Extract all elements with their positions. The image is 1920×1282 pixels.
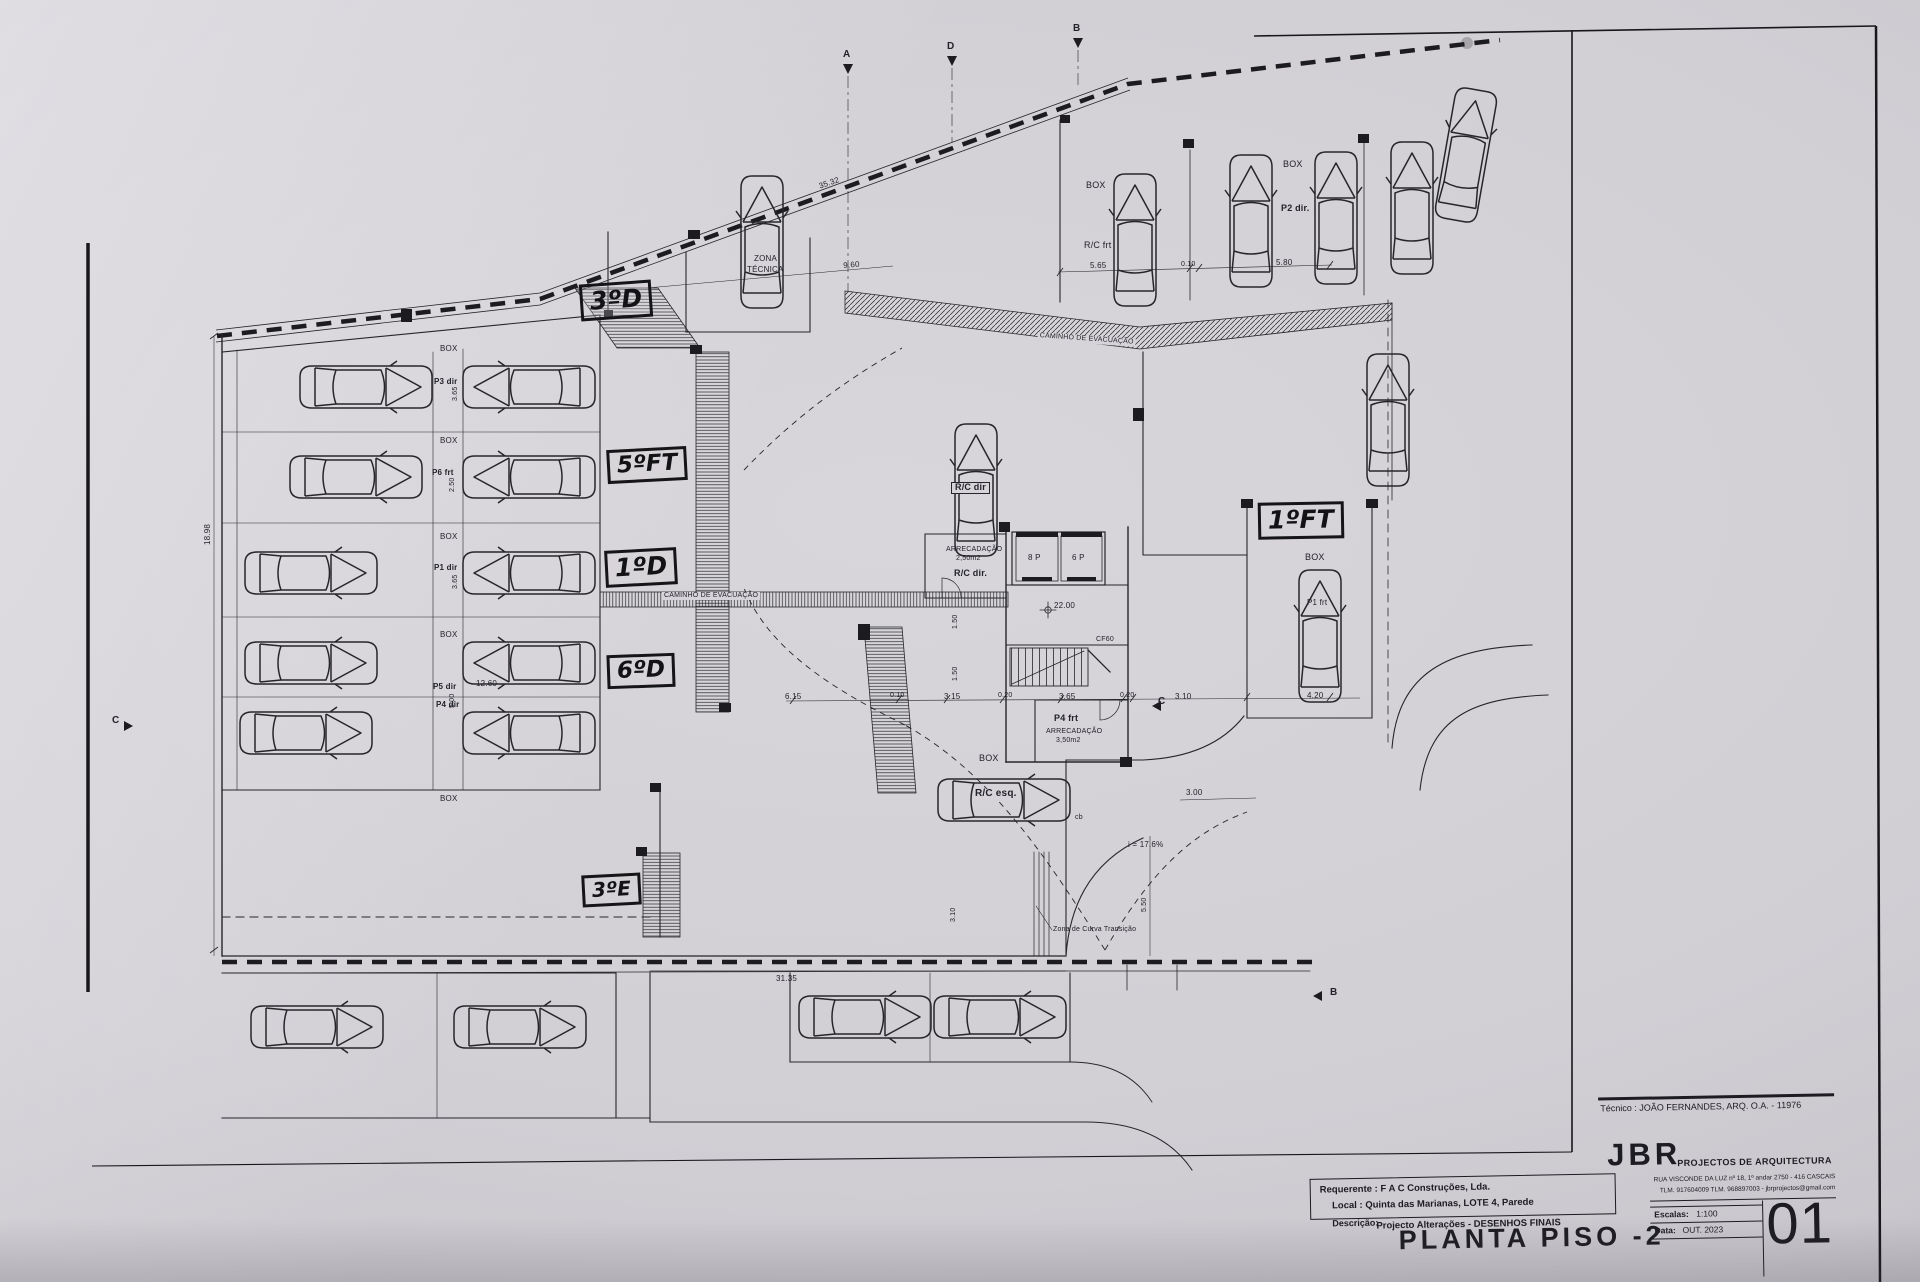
- dim-0-20: 0.20: [1120, 692, 1134, 700]
- stall-code-p4-frt: P4 frt: [1054, 714, 1078, 724]
- car-icon: [245, 547, 377, 599]
- elevator-8p-label: 8 P: [1028, 554, 1041, 563]
- stall-code-p1-frt: P1 frt: [1307, 599, 1327, 608]
- handwritten-unit-6d: 6ºD: [606, 653, 675, 689]
- handwritten-unit-5ft: 5ºFT: [606, 446, 688, 484]
- rc-dir-room-label: R/C dir.: [954, 569, 987, 579]
- dim-6-15: 6.15: [785, 693, 801, 702]
- dim-9-60: 9.60: [843, 261, 860, 271]
- rc-frt-label: R/C frt: [1084, 241, 1111, 251]
- box-label: BOX: [440, 631, 458, 640]
- dim-5-50-v: 5.50: [1141, 898, 1149, 912]
- dim-18-98: 18.98: [204, 524, 213, 545]
- box-label: BOX: [440, 533, 458, 542]
- ramp-slope-label: i = 17.6%: [1128, 841, 1163, 850]
- zona-tecnica-label: TÉCNICA: [747, 266, 784, 275]
- car-icon: [1429, 85, 1503, 224]
- escalas-label: Escalas:: [1654, 1209, 1689, 1220]
- car-icon: [1310, 152, 1362, 284]
- box-label: BOX: [440, 345, 458, 354]
- car-icon: [799, 991, 931, 1043]
- dim-3-65-v2: 3.65: [452, 575, 460, 589]
- handwritten-unit-1ft: 1ºFT: [1258, 501, 1344, 539]
- dim-5-80: 5.80: [1276, 259, 1292, 268]
- arrecadacao-area: 2,50m2: [956, 555, 981, 563]
- rc-dir-car-label: R/C dir: [951, 482, 990, 494]
- dim-3-10: 3.10: [1175, 693, 1191, 702]
- firm-name: PROJECTOS DE ARQUITECTURA: [1677, 1155, 1832, 1168]
- firm-address: RUA VISCONDE DA LUZ nº 18, 1º andar 2750…: [1654, 1173, 1836, 1183]
- car-icon: [736, 176, 788, 308]
- stall-code-p6-frt: P6 frt: [432, 469, 454, 478]
- rc-esq-car-label: R/C esq.: [973, 789, 1019, 800]
- box-label: BOX: [1086, 181, 1106, 191]
- dim-12-60: 12.60: [476, 680, 497, 689]
- dim-2-50-v: 2.50: [449, 478, 457, 492]
- drawing-title: PLANTA PISO -2: [1398, 1220, 1665, 1256]
- section-marker-d: D: [947, 42, 954, 53]
- parked-cars: [240, 85, 1503, 1053]
- car-icon: [934, 991, 1066, 1043]
- zona-tecnica-label: ZONA: [754, 255, 777, 264]
- curve-transition-label: Zona de Curva Transição: [1053, 926, 1136, 934]
- section-marker-b-bottom: B: [1330, 988, 1337, 999]
- dim-3-65: 3.65: [1059, 693, 1075, 702]
- dim-5-65: 5.65: [1090, 262, 1106, 271]
- dim-31-35: 31.35: [776, 975, 797, 984]
- firm-initials: JBR: [1607, 1136, 1682, 1173]
- arrecadacao-label: ARRECADAÇÃO: [946, 546, 1002, 554]
- escalas-value: 1:100: [1696, 1208, 1717, 1218]
- car-icon: [463, 547, 595, 599]
- box-label: BOX: [979, 754, 999, 764]
- box-label: BOX: [1305, 553, 1325, 563]
- box-label: BOX: [440, 795, 458, 804]
- stall-code-p2-dir: P2 dir.: [1281, 204, 1309, 214]
- car-icon: [1386, 142, 1438, 274]
- data-value: OUT. 2023: [1682, 1224, 1723, 1235]
- dim-3-00: 3.00: [1186, 789, 1202, 798]
- car-icon: [290, 451, 422, 503]
- section-marker-b: B: [1073, 24, 1080, 35]
- dim-3-65-v1: 3.65: [452, 387, 460, 401]
- car-icon: [463, 361, 595, 413]
- hatched-ramps: [575, 288, 1392, 937]
- car-icon: [463, 451, 595, 503]
- section-marker-cb: cb: [1075, 814, 1083, 822]
- section-marker-c-right: C: [1158, 697, 1165, 708]
- box-label: BOX: [1283, 160, 1303, 170]
- dim-0-10: 0.10: [890, 692, 904, 700]
- stall-code-p4-dir: P4 dir: [436, 701, 459, 710]
- caminho-evacuacao-label: CAMINHO DE EVACUAÇÃO: [662, 592, 760, 600]
- handwritten-unit-3d: 3ºD: [579, 280, 654, 322]
- car-icon: [1294, 570, 1346, 702]
- car-icon: [938, 774, 1070, 826]
- dim-1-50-v: 1.50: [952, 615, 960, 629]
- handwritten-unit-3e: 3ºE: [581, 872, 641, 907]
- car-icon: [463, 707, 595, 759]
- section-marker-a: A: [843, 50, 850, 61]
- door-cf60-label: CF60: [1096, 636, 1114, 644]
- stall-code-p3-dir: P3 dir: [434, 378, 457, 387]
- arrecadacao-area: 3,50m2: [1056, 737, 1081, 745]
- dim-3-10-v: 3.10: [950, 908, 958, 922]
- car-icon: [245, 637, 377, 689]
- section-marker-c-left: C: [112, 716, 119, 727]
- car-icon: [454, 1001, 586, 1053]
- car-icon: [251, 1001, 383, 1053]
- tecnico-line: Técnico : JOÃO FERNANDES, ARQ. O.A. - 11…: [1600, 1100, 1801, 1114]
- stall-code-p1-dir: P1 dir: [434, 564, 457, 573]
- descricao-label: Descrição:: [1332, 1218, 1378, 1229]
- dim-0-20: 0.20: [998, 692, 1012, 700]
- data-label: Data:: [1654, 1225, 1675, 1235]
- car-icon: [300, 361, 432, 413]
- car-icon: [1109, 174, 1161, 306]
- stall-code-p5-dir: P5 dir: [433, 683, 456, 692]
- dim-1-50-v: 1.50: [952, 667, 960, 681]
- sheet-number: 01: [1766, 1189, 1834, 1257]
- dim-0-10: 0.10: [1181, 261, 1195, 269]
- handwritten-unit-1d: 1ºD: [604, 547, 678, 588]
- box-label: BOX: [440, 437, 458, 446]
- dim-4-20: 4.20: [1307, 692, 1323, 701]
- arrecadacao-label: ARRECADAÇÃO: [1046, 728, 1102, 736]
- photographed-drawing-sheet: BOX P3 dir 3.65 BOX P6 frt 2.50 BOX P1 d…: [0, 0, 1920, 1282]
- level-mark-22-00: 22.00: [1054, 602, 1075, 611]
- title-block: Técnico : JOÃO FERNANDES, ARQ. O.A. - 11…: [1300, 1085, 1869, 1282]
- drive-path-curves: [744, 348, 1247, 950]
- car-icon: [240, 707, 372, 759]
- requerente-box: [1310, 1173, 1617, 1220]
- dim-3-15: 3.15: [944, 693, 960, 702]
- elevator-6p-label: 6 P: [1072, 554, 1085, 563]
